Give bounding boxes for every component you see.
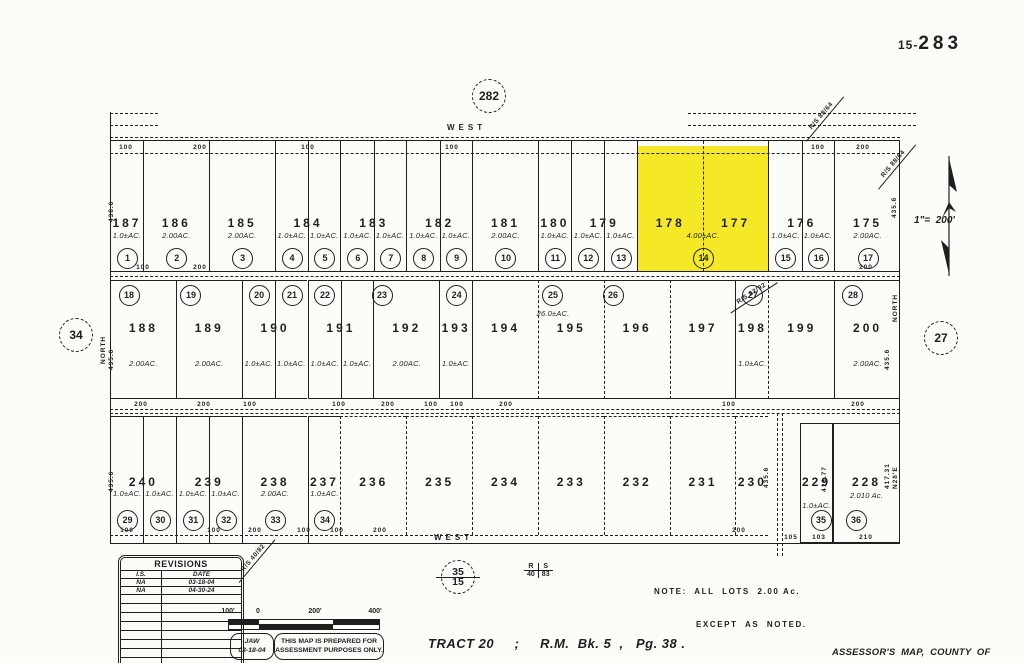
parcel-197[interactable]: 197 (670, 280, 736, 399)
parcel-number: 235 (425, 475, 454, 489)
revision-empty-row (121, 595, 241, 604)
parcel-acreage: 2.00AC. (228, 231, 257, 240)
parcel-number: 196 (623, 321, 652, 335)
preparer-stamp: JAW 03-18-04 (230, 633, 274, 660)
revision-empty-cell (121, 604, 162, 612)
parcel-238[interactable]: 2382.00AC.33 (242, 416, 308, 543)
scale-bar-seg (259, 625, 333, 630)
edge-dimension-label: 435.6 (108, 349, 115, 370)
boundary-line-dashed (110, 153, 900, 154)
parcel-circle-note: 26.0±AC. (537, 309, 570, 318)
dimension-label: 100 (722, 401, 736, 408)
dimension-label: 100 (424, 401, 438, 408)
parcel-acreage: 2.00AC. (162, 231, 191, 240)
parcel-acreage: 1.0±AC. (310, 489, 338, 498)
scale-bar-label-400: 400' (368, 608, 381, 615)
parcel-number: 231 (688, 475, 717, 489)
parcel-index-circle: 22 (314, 285, 335, 306)
parcel-acreage: 1.0±AC. (409, 231, 437, 240)
parcel-index-circle: 19 (180, 285, 201, 306)
scale-bar-label-100: 100' (221, 608, 234, 615)
parcel-184[interactable]: 1841.0±AC.1.0±AC.45 (275, 140, 341, 272)
parcel-181[interactable]: 1812.00AC.10 (472, 140, 538, 272)
parcel-index-circle: 25 (542, 285, 563, 306)
parcel-acreage: 1.0±AC. (376, 231, 404, 240)
parcel-189[interactable]: 1892.00AC.19 (176, 280, 242, 399)
scale-bar-strip (228, 619, 380, 630)
dimension-label: 200 (851, 401, 865, 408)
parcel-acreage: 1.0±AC. (442, 231, 470, 240)
dimension-label: 103 (812, 534, 826, 541)
boundary-line-dashed (110, 276, 900, 277)
disclaimer-stamp: THIS MAP IS PREPARED FOR ASSESSMENT PURP… (274, 633, 384, 660)
parcel-index-circle: 36 (846, 510, 867, 531)
boundary-line-dashed (110, 409, 900, 410)
edge-north-label-left: NORTH (100, 336, 107, 364)
parcel-index-circle: 1 (117, 248, 138, 269)
parcel-number: 180 (540, 216, 569, 230)
parcel-acreage: 1.0±AC. (771, 231, 799, 240)
dimension-label: 100 (445, 144, 459, 151)
parcel-acreage: 1.0±AC. (606, 231, 634, 240)
edge-dimension-label: 435.6 (884, 349, 891, 370)
parcel-195[interactable]: 1952526.0±AC. (538, 280, 604, 399)
survey-cross-ref: R S 40 83 (524, 563, 553, 578)
parcel-acreage: 1.0±AC. (541, 231, 569, 240)
parcel-number: 236 (359, 475, 388, 489)
parcel-index-circle: 23 (372, 285, 393, 306)
parcel-index-circle: 9 (446, 248, 467, 269)
cross-ref-bl: 40 (524, 571, 538, 579)
revision-empty-row (121, 658, 241, 663)
parcel-number: 195 (557, 321, 586, 335)
parcel-number: 197 (688, 321, 717, 335)
parcel-index-circle: 26 (603, 285, 624, 306)
parcel-index-circle: 14 (693, 248, 714, 269)
parcel-number: 191 (326, 321, 355, 335)
revisions-col-is: I.S. (121, 571, 162, 578)
dimension-label: 210 (859, 534, 873, 541)
dimension-label: 105 (784, 534, 798, 541)
parcel-number: 238 (261, 475, 290, 489)
boundary-line-dashed (688, 125, 916, 126)
parcel-number: 193 (442, 321, 471, 335)
parcel-number: 237 (310, 475, 339, 489)
dimension-label: 100 (243, 401, 257, 408)
parcel-acreage: 1.0±AC. (113, 231, 141, 240)
dimension-label: 100 (330, 527, 344, 534)
edge-dimension-label: 438.6 (108, 201, 115, 222)
revision-empty-cell (121, 595, 162, 603)
parcel-acreage: 1.0±AC. (211, 489, 239, 498)
west-road-label-bottom: WEST (434, 533, 473, 542)
dimension-label: 100 (120, 527, 134, 534)
cross-ref-tr: S (538, 563, 552, 571)
parcel-180[interactable]: 1801.0±AC.11 (538, 140, 571, 272)
parcel-199[interactable]: 199 (768, 280, 834, 399)
parcel-number: 199 (787, 321, 816, 335)
parcel-number: 183 (359, 216, 388, 230)
parcel-acreage: 2.00AC. (195, 359, 224, 368)
parcel-acreage: 1.0±AC. (802, 501, 830, 510)
parcel-acreage: 1.0±AC. (245, 359, 273, 368)
parcel-index-circle: 28 (842, 285, 863, 306)
parcel-acreage: 4.00±AC. (687, 231, 720, 240)
parcel-200[interactable]: 2002.00AC.28 (834, 280, 900, 399)
revision-empty-cell (121, 613, 162, 621)
parcel-number: 192 (392, 321, 421, 335)
parcel-183[interactable]: 1831.0±AC.1.0±AC.67 (340, 140, 406, 272)
parcel-188[interactable]: 1882.00AC.18 (110, 280, 176, 399)
edge-dimension-label: 435.6 (763, 467, 770, 488)
parcel-index-circle: 7 (380, 248, 401, 269)
parcel-acreage: 2.00AC. (491, 231, 520, 240)
assessor-credit-line1: ASSESSOR'S MAP, COUNTY OF (832, 648, 990, 658)
parcel-182[interactable]: 1821.0±AC.1.0±AC.89 (406, 140, 472, 272)
revision-empty-cell (121, 622, 162, 630)
north-arrow-icon (933, 152, 965, 280)
revision-date: 03-18-04 (162, 579, 241, 586)
revision-date: 04-30-24 (162, 587, 241, 594)
disclaimer-line2: ASSESSMENT PURPOSES ONLY. (275, 647, 383, 656)
parcel-number: 228 (852, 475, 881, 489)
parcel-number: 177 (721, 216, 750, 230)
revision-is: NA (121, 579, 162, 586)
parcel-239[interactable]: 2391.0±AC.1.0±AC.3132 (176, 416, 242, 543)
parcel-index-circle: 35 (811, 510, 832, 531)
parcel-acreage: 1.0±AC. (343, 231, 371, 240)
dimension-label: 100 (136, 264, 150, 271)
revision-empty-cell (121, 640, 162, 648)
parcel-split-line (604, 141, 605, 271)
boundary-line (110, 112, 111, 140)
parcel-acreage: 1.0±AC. (804, 231, 832, 240)
revision-empty-row (121, 649, 241, 658)
parcel-index-circle: 10 (495, 248, 516, 269)
parcel-index-circle: 2 (166, 248, 187, 269)
parcel-acreage: 2.00AC. (129, 359, 158, 368)
parcel-acreage: 1.0±AC. (113, 489, 141, 498)
parcel-acreage: 1.0±AC. (574, 231, 602, 240)
map-note-line2: EXCEPT AS NOTED. (654, 619, 807, 630)
dimension-label: 100 (207, 527, 221, 534)
parcel-acreage: 2.00AC. (853, 231, 882, 240)
parcel-acreage: 1.0±AC. (343, 359, 371, 368)
boundary-line-dashed (782, 413, 783, 556)
dimension-label: 200 (381, 401, 395, 408)
parcel-236[interactable]: 236 (340, 416, 406, 535)
parcel-split-line (374, 141, 375, 271)
parcel-232[interactable]: 232 (604, 416, 670, 535)
dimension-label: 200 (859, 264, 873, 271)
parcel-index-circle: 30 (150, 510, 171, 531)
parcel-split-line (341, 281, 342, 398)
parcel-number: 182 (425, 216, 454, 230)
parcel-number: 232 (623, 475, 652, 489)
revision-empty-row (121, 640, 241, 649)
revision-entry-row: NA03-18-04 (121, 579, 241, 587)
revision-entry-row: NA04-30-24 (121, 587, 241, 595)
parcel-index-circle: 21 (282, 285, 303, 306)
edge-dimension-label: 418.77 (821, 466, 828, 492)
dimension-label: 200 (193, 264, 207, 271)
tract-reference: TRACT 20 ; R.M. Bk. 5 , Pg. 38 . (428, 636, 686, 651)
parcel-number: 187 (112, 216, 141, 230)
parcel-acreage: 1.0±AC. (277, 359, 305, 368)
parcel-number: 188 (129, 321, 158, 335)
cross-ref-tl: R (524, 563, 538, 571)
parcel-index-circle: 5 (314, 248, 335, 269)
parcel-number: 176 (787, 216, 816, 230)
parcel-178[interactable]: 1781774.00±AC.14 (637, 140, 769, 272)
parcel-192[interactable]: 1922.00AC.23 (373, 280, 439, 399)
parcel-185[interactable]: 1852.00AC.3 (209, 140, 275, 272)
dimension-label: 200 (732, 527, 746, 534)
parcel-index-circle: 4 (282, 248, 303, 269)
boundary-line-dashed (777, 413, 778, 556)
parcel-190[interactable]: 1901.0±AC.1.0±AC.2021 (242, 280, 308, 399)
scale-bar-label-0: 0 (256, 608, 260, 615)
dimension-label: 100 (119, 144, 133, 151)
boundary-line-dashed (688, 113, 916, 114)
parcel-number: 189 (195, 321, 224, 335)
parcel-number: 194 (491, 321, 520, 335)
revision-empty-cell (121, 631, 162, 639)
revision-empty-cell (121, 658, 162, 663)
parcel-index-circle: 15 (775, 248, 796, 269)
parcel-233[interactable]: 233 (538, 416, 604, 535)
map-note-line1: NOTE: ALL LOTS 2.00 Ac. (654, 586, 807, 597)
parcel-193[interactable]: 1931.0±AC.24 (439, 280, 472, 399)
edge-dimension-label: 435.6 (891, 197, 898, 218)
parcel-acreage: 1.0±AC. (179, 489, 207, 498)
parcel-index-circle: 18 (119, 285, 140, 306)
parcel-index-circle: 31 (183, 510, 204, 531)
dimension-label: 200 (134, 401, 148, 408)
dimension-label: 100 (332, 401, 346, 408)
parcel-240[interactable]: 2401.0±AC.1.0±AC.2930 (110, 416, 176, 543)
edge-dimension-label: 417.31 (884, 463, 891, 489)
parcel-number: 179 (590, 216, 619, 230)
parcel-acreage: 2.00AC. (853, 359, 882, 368)
parcel-number: 178 (656, 216, 685, 230)
parcel-229[interactable]: 2291.0±AC.35 (800, 423, 833, 543)
preparer-initials: JAW (245, 638, 260, 647)
dimension-label: 100 (811, 144, 825, 151)
disclaimer-line1: THIS MAP IS PREPARED FOR (281, 638, 377, 647)
dimension-label: 200 (373, 527, 387, 534)
parcel-number: 185 (228, 216, 257, 230)
dimension-label: 100 (297, 527, 311, 534)
parcel-number: 233 (557, 475, 586, 489)
parcel-237[interactable]: 2371.0±AC.34 (308, 416, 341, 543)
boundary-line-dashed (110, 113, 158, 114)
parcel-split-line (440, 141, 441, 271)
parcel-number: 175 (853, 216, 882, 230)
parcel-176[interactable]: 1761.0±AC.1.0±AC.1516 (768, 140, 834, 272)
parcel-acreage: 1.0±AC. (442, 359, 470, 368)
parcel-index-circle: 20 (249, 285, 270, 306)
parcel-acreage: 1.0±AC. (310, 231, 338, 240)
parcel-186[interactable]: 1862.00AC.2 (143, 140, 209, 272)
dimension-label: 100 (301, 144, 315, 151)
preparer-date: 03-18-04 (238, 647, 265, 656)
parcel-196[interactable]: 19626 (604, 280, 670, 399)
parcel-index-circle: 11 (545, 248, 566, 269)
parcel-number: 184 (293, 216, 322, 230)
boundary-line-dashed (110, 137, 900, 138)
parcel-index-circle: 6 (347, 248, 368, 269)
dimension-label: 200 (197, 401, 211, 408)
dimension-label: 200 (856, 144, 870, 151)
edge-dimension-label: 435.6 (108, 471, 115, 492)
revisions-title: REVISIONS (121, 558, 241, 571)
dimension-label: 200 (499, 401, 513, 408)
parcel-index-circle: 16 (808, 248, 829, 269)
revision-is: NA (121, 587, 162, 594)
edge-north-label-right: NORTH (892, 294, 899, 322)
parcel-split-line (275, 281, 276, 398)
parcel-acreage: 1.0±AC. (738, 359, 766, 368)
cross-ref-br: 83 (538, 571, 552, 579)
parcel-number: 186 (162, 216, 191, 230)
parcel-number: 239 (195, 475, 224, 489)
parcel-index-circle: 12 (578, 248, 599, 269)
parcel-number: 190 (261, 321, 290, 335)
parcel-235[interactable]: 235 (406, 416, 472, 535)
parcel-234[interactable]: 234 (472, 416, 538, 535)
parcel-index-circle: 33 (265, 510, 286, 531)
parcel-number: 198 (738, 321, 767, 335)
parcel-acreage: 1.0±AC. (145, 489, 173, 498)
parcel-231[interactable]: 231 (670, 416, 736, 535)
dimension-label: 200 (248, 527, 262, 534)
revision-empty-cell (121, 649, 162, 657)
parcel-index-circle: 13 (611, 248, 632, 269)
parcel-acreage: 1.0±AC. (310, 359, 338, 368)
parcel-acreage: 1.0±AC. (278, 231, 306, 240)
parcel-179[interactable]: 1791.0±AC.1.0±AC.1213 (571, 140, 637, 272)
parcel-number: 240 (129, 475, 158, 489)
scale-bar-label-200: 200' (308, 608, 321, 615)
parcel-split-line (308, 141, 309, 271)
boundary-line (899, 140, 900, 543)
assessor-credit: ASSESSOR'S MAP, COUNTY OF SAN LUIS OBISP… (832, 629, 990, 663)
parcel-191[interactable]: 1911.0±AC.1.0±AC.22 (308, 280, 374, 399)
parcel-index-circle: 24 (446, 285, 467, 306)
parcel-index-circle: 3 (232, 248, 253, 269)
parcel-index-circle: 8 (413, 248, 434, 269)
assessor-map-page: 15-283 282 34 27 35 15 1871.0±AC.11862.0… (0, 0, 1024, 663)
parcel-split-line (802, 141, 803, 271)
revisions-col-date: DATE (162, 571, 241, 578)
revisions-header-row: I.S. DATE (121, 571, 241, 579)
parcel-acreage: 2.00AC. (261, 489, 290, 498)
parcel-number: 200 (853, 321, 882, 335)
edge-bearing-label: N28'E (892, 466, 899, 489)
parcel-number: 181 (491, 216, 520, 230)
scale-bar: 100' 0 200' 400' (215, 605, 390, 633)
boundary-line-dashed (110, 125, 158, 126)
parcel-acreage: 2.00AC. (392, 359, 421, 368)
parcel-194[interactable]: 194 (472, 280, 538, 399)
dimension-label: 100 (450, 401, 464, 408)
west-road-label-top: WEST (447, 123, 486, 132)
parcel-number: 234 (491, 475, 520, 489)
parcel-acreage: 2.010 Ac. (850, 491, 883, 500)
dimension-label: 200 (193, 144, 207, 151)
